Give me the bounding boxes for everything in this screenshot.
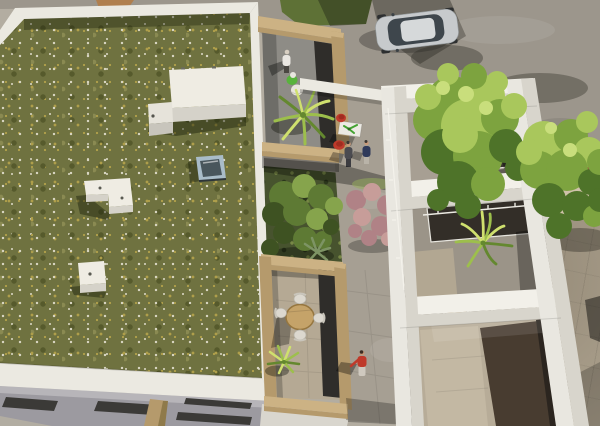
legs — [359, 366, 366, 376]
round-wood-table — [286, 305, 314, 330]
lower-terrace — [259, 254, 352, 419]
torso — [358, 356, 367, 367]
vent — [88, 272, 91, 275]
hair — [346, 141, 349, 144]
head — [285, 50, 290, 55]
car-roof — [400, 17, 436, 42]
green-roof — [0, 2, 272, 401]
hair — [365, 140, 368, 143]
asphalt-highlight — [445, 16, 555, 44]
legs — [364, 156, 369, 164]
legs — [346, 158, 351, 167]
hvac-box-small-L-side — [86, 194, 108, 202]
roof-skylight — [188, 155, 226, 183]
red-chair-seat — [336, 141, 343, 146]
vent — [212, 67, 216, 69]
scene-overlay — [0, 0, 600, 426]
red-chair-seat — [339, 115, 345, 120]
palm-crown — [300, 112, 306, 118]
torso — [345, 147, 353, 159]
hvac-box-large-top — [169, 66, 246, 108]
vent — [181, 68, 185, 70]
hvac-box-attach-top — [148, 102, 173, 124]
legs — [284, 65, 289, 73]
torso — [363, 146, 371, 157]
vent — [151, 114, 154, 117]
white-cushion — [290, 72, 296, 78]
shadow — [585, 296, 600, 342]
plant-shadow — [265, 366, 289, 377]
roof-equipment — [70, 66, 246, 298]
hair — [360, 350, 364, 354]
torso — [283, 55, 291, 66]
hvac-box-small-top — [78, 261, 106, 285]
green-shrubs — [261, 174, 343, 257]
aerial-render — [0, 0, 600, 426]
light-tile-floor — [420, 326, 488, 426]
vent — [121, 197, 124, 200]
vent — [99, 187, 102, 190]
